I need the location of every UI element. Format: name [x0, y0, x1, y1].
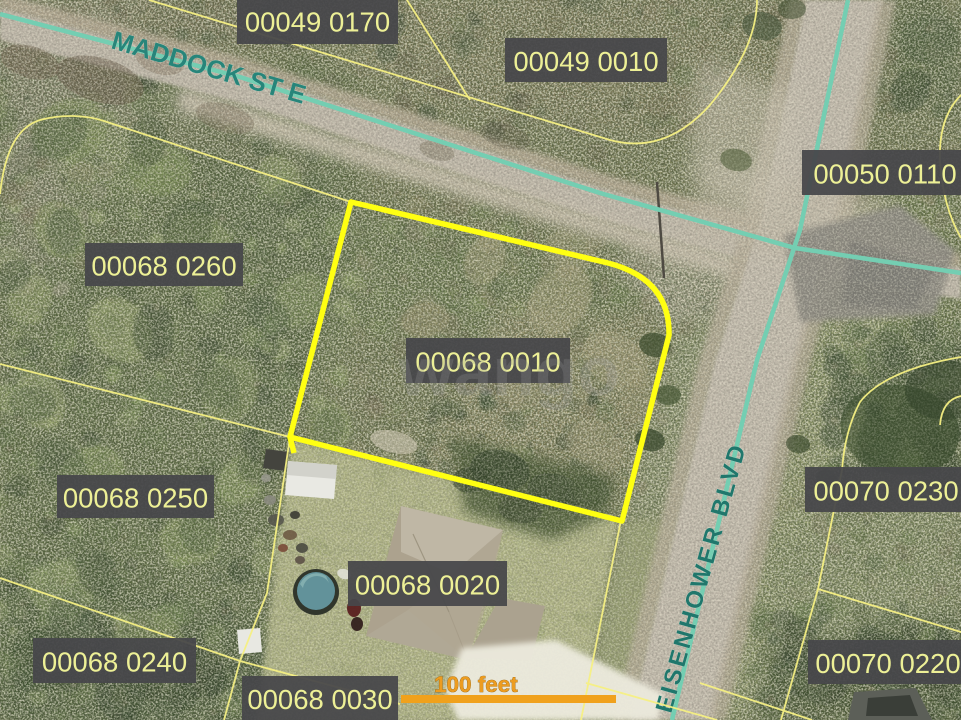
- svg-text:00068 0250: 00068 0250: [63, 483, 208, 514]
- svg-text:00068 0020: 00068 0020: [355, 570, 500, 601]
- svg-text:00070 0230: 00070 0230: [813, 476, 958, 507]
- svg-text:100 feet: 100 feet: [434, 672, 518, 697]
- svg-text:00070 0220: 00070 0220: [815, 648, 960, 679]
- svg-text:wango: wango: [397, 332, 620, 410]
- svg-text:00049 0010: 00049 0010: [513, 46, 658, 77]
- svg-text:00068 0240: 00068 0240: [42, 647, 187, 678]
- svg-text:00068 0260: 00068 0260: [91, 251, 236, 282]
- svg-text:00050 0110: 00050 0110: [813, 159, 956, 190]
- svg-text:00068 0030: 00068 0030: [247, 684, 392, 715]
- svg-text:00049 0170: 00049 0170: [245, 7, 390, 38]
